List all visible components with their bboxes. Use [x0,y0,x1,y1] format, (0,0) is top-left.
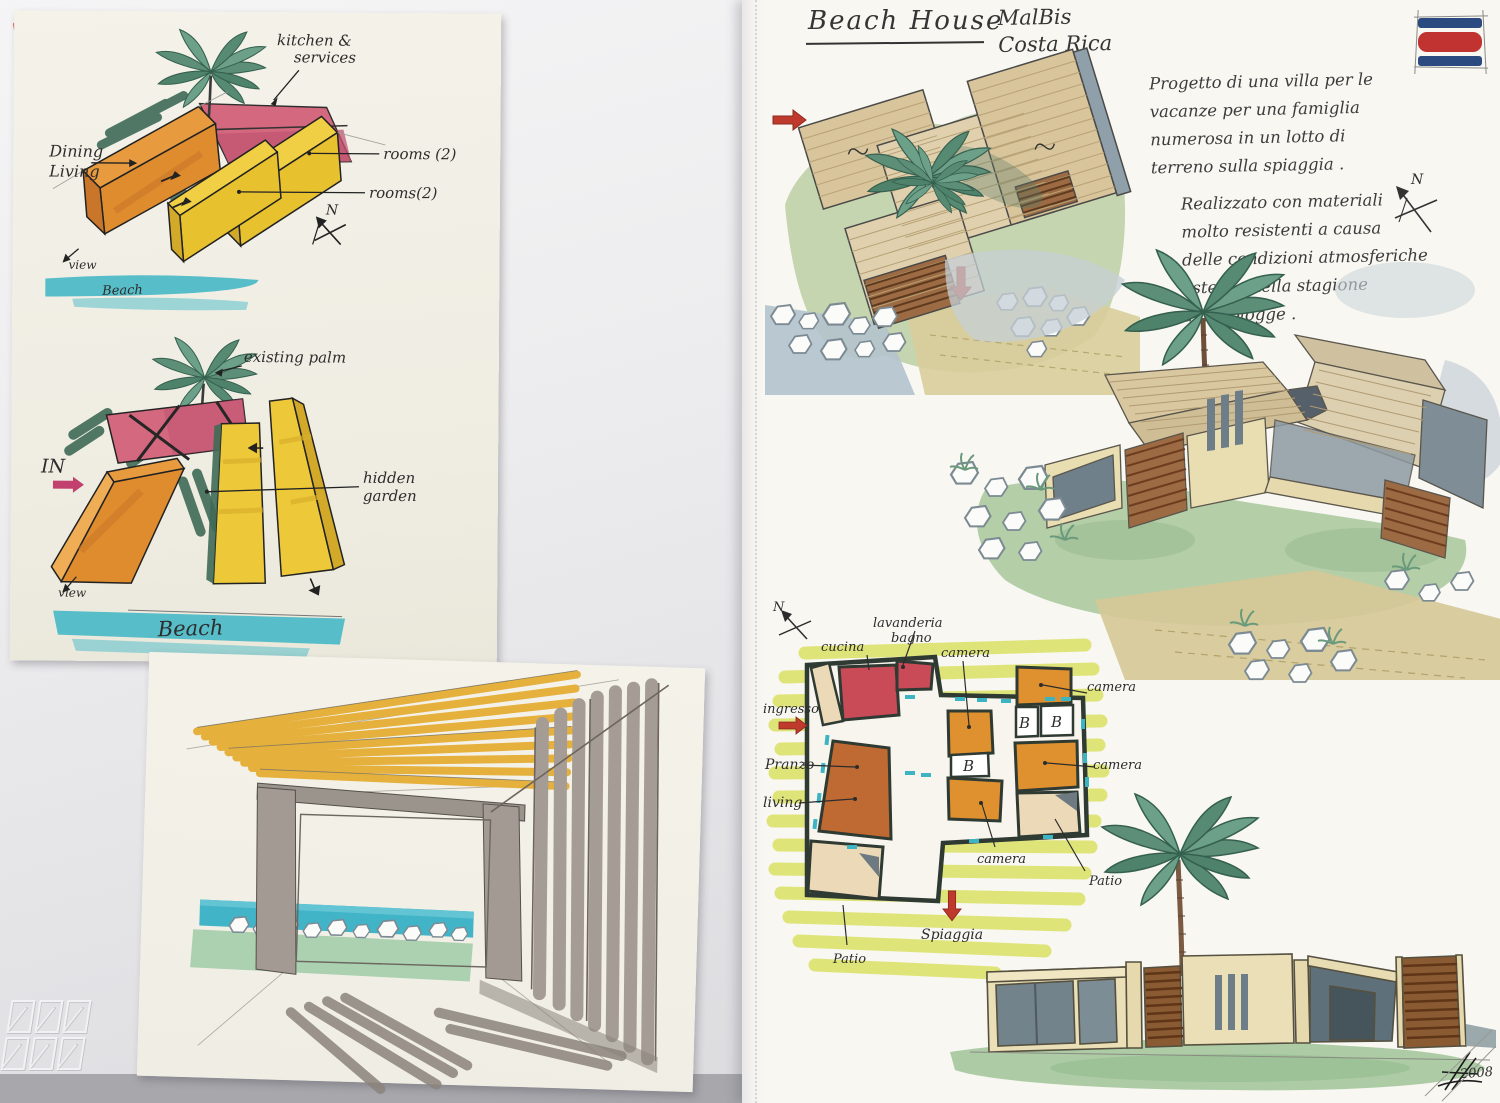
year-label: 2008 [1460,1065,1494,1082]
description-paragraph-1: Progetto di una villa per le vacanze per… [1149,66,1375,183]
north-arrow-plan: N [772,600,811,639]
svg-text:N: N [325,202,339,218]
pergola-drawing [137,652,705,1092]
bedroom-label-top: camera [941,646,990,661]
hidden-garden-label-line2: garden [363,487,417,505]
embossed-logo [0,1000,91,1070]
location-line1: MalBis [998,3,1112,32]
view-label-bottom: view [58,586,87,600]
flag-stripe-blue-bottom [1418,56,1482,66]
laundry-label-line1: lavanderia [873,616,943,631]
presentation-page: Beach House MalBis Costa Rica Progetto d… [742,0,1500,1103]
massing-sketches-drawing: kitchen & services Dining Living rooms (… [10,10,502,663]
kitchen-label: cucina [821,640,864,655]
photo-of-architecture-sketchbook: kitchen & services Dining Living rooms (… [0,0,1500,1103]
rooms-2-label-b: rooms(2) [369,184,438,202]
bath-label-3: B [962,757,974,775]
title-underline [806,41,984,45]
north-label: N [1410,172,1424,188]
north-arrow-aerial: N [1385,170,1445,240]
flag-stripe-red [1418,32,1482,52]
dining-label: Pranzo [764,757,814,773]
embossed-logo-cell [34,1000,63,1033]
massing-sketches-sheet: kitchen & services Dining Living rooms (… [10,10,502,663]
pergola-beams [196,663,577,786]
kitchen-services-label-line1: kitchen & [277,31,352,50]
view-label-top: view [68,258,97,272]
laundry-label-line2: bagno [891,631,932,646]
bedroom-label-right: camera [1093,758,1142,773]
dining-label-line1: Dining [48,142,103,161]
elevation-view [930,790,1500,1103]
hidden-garden-label-line1: hidden [363,469,415,487]
entrance-label: ingresso [763,702,819,717]
page-title: Beach House [808,6,1003,36]
massing-sketch-top: kitchen & services Dining Living rooms (… [45,29,457,313]
patio-label-left: Patio [832,952,866,967]
description-line: terreno sulla spiaggia . [1151,150,1375,183]
entrance-arrow-pink [53,477,84,493]
embossed-logo-cell [28,1037,57,1070]
north-arrow-sketch-top: N [313,202,346,244]
kitchen-services-label-line2: services [294,48,356,66]
flag-stripe-blue-top [1418,18,1482,28]
living-label: living [763,795,802,811]
bedroom-label-right-top: camera [1087,680,1136,695]
pergola-sketch [177,659,669,1097]
location-label: MalBis Costa Rica [998,3,1113,59]
dining-label-line2: Living [48,162,100,181]
in-label: IN [40,455,67,477]
beach-label-bottom: Beach [156,615,223,641]
beach-label-top: Beach [101,283,143,299]
bath-label-2: B [1050,713,1062,731]
existing-palm-label: existing palm [244,348,346,367]
rooms-2-label-a: rooms (2) [383,145,456,164]
bath-label-1: B [1018,714,1030,732]
embossed-logo-cell [6,1000,35,1033]
elevation-house [987,954,1466,1052]
costa-rica-flag [1414,14,1488,70]
pergola-sketch-sheet [137,652,705,1092]
massing-sketch-bottom: IN existing palm hidden garden view Beac… [39,337,418,660]
embossed-logo-cell [0,1037,29,1070]
